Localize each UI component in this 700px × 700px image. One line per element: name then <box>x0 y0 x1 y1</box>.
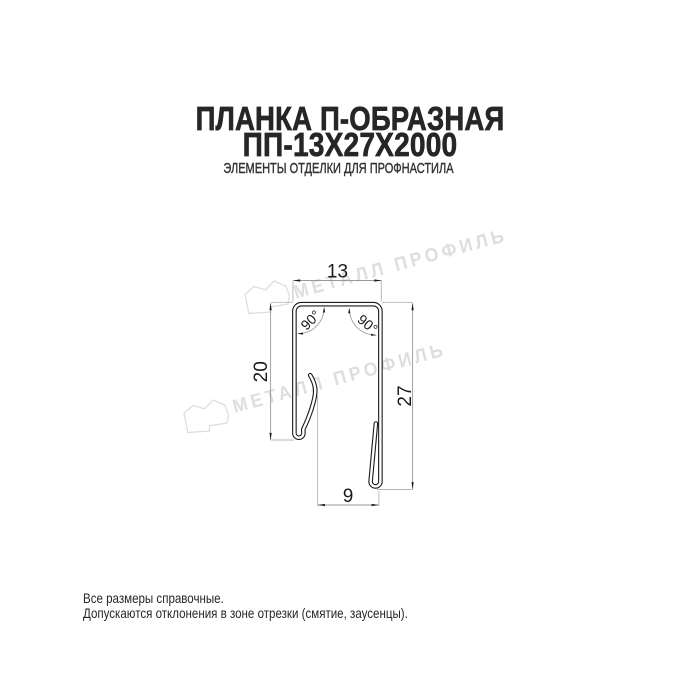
svg-text:90°: 90° <box>354 311 381 337</box>
svg-text:13: 13 <box>327 262 348 283</box>
svg-text:МЕТАЛЛ ПРОФИЛЬ: МЕТАЛЛ ПРОФИЛЬ <box>291 224 509 303</box>
svg-text:90°: 90° <box>297 307 323 333</box>
svg-text:27: 27 <box>395 385 416 406</box>
svg-text:20: 20 <box>251 361 272 382</box>
svg-text:9: 9 <box>343 486 354 507</box>
